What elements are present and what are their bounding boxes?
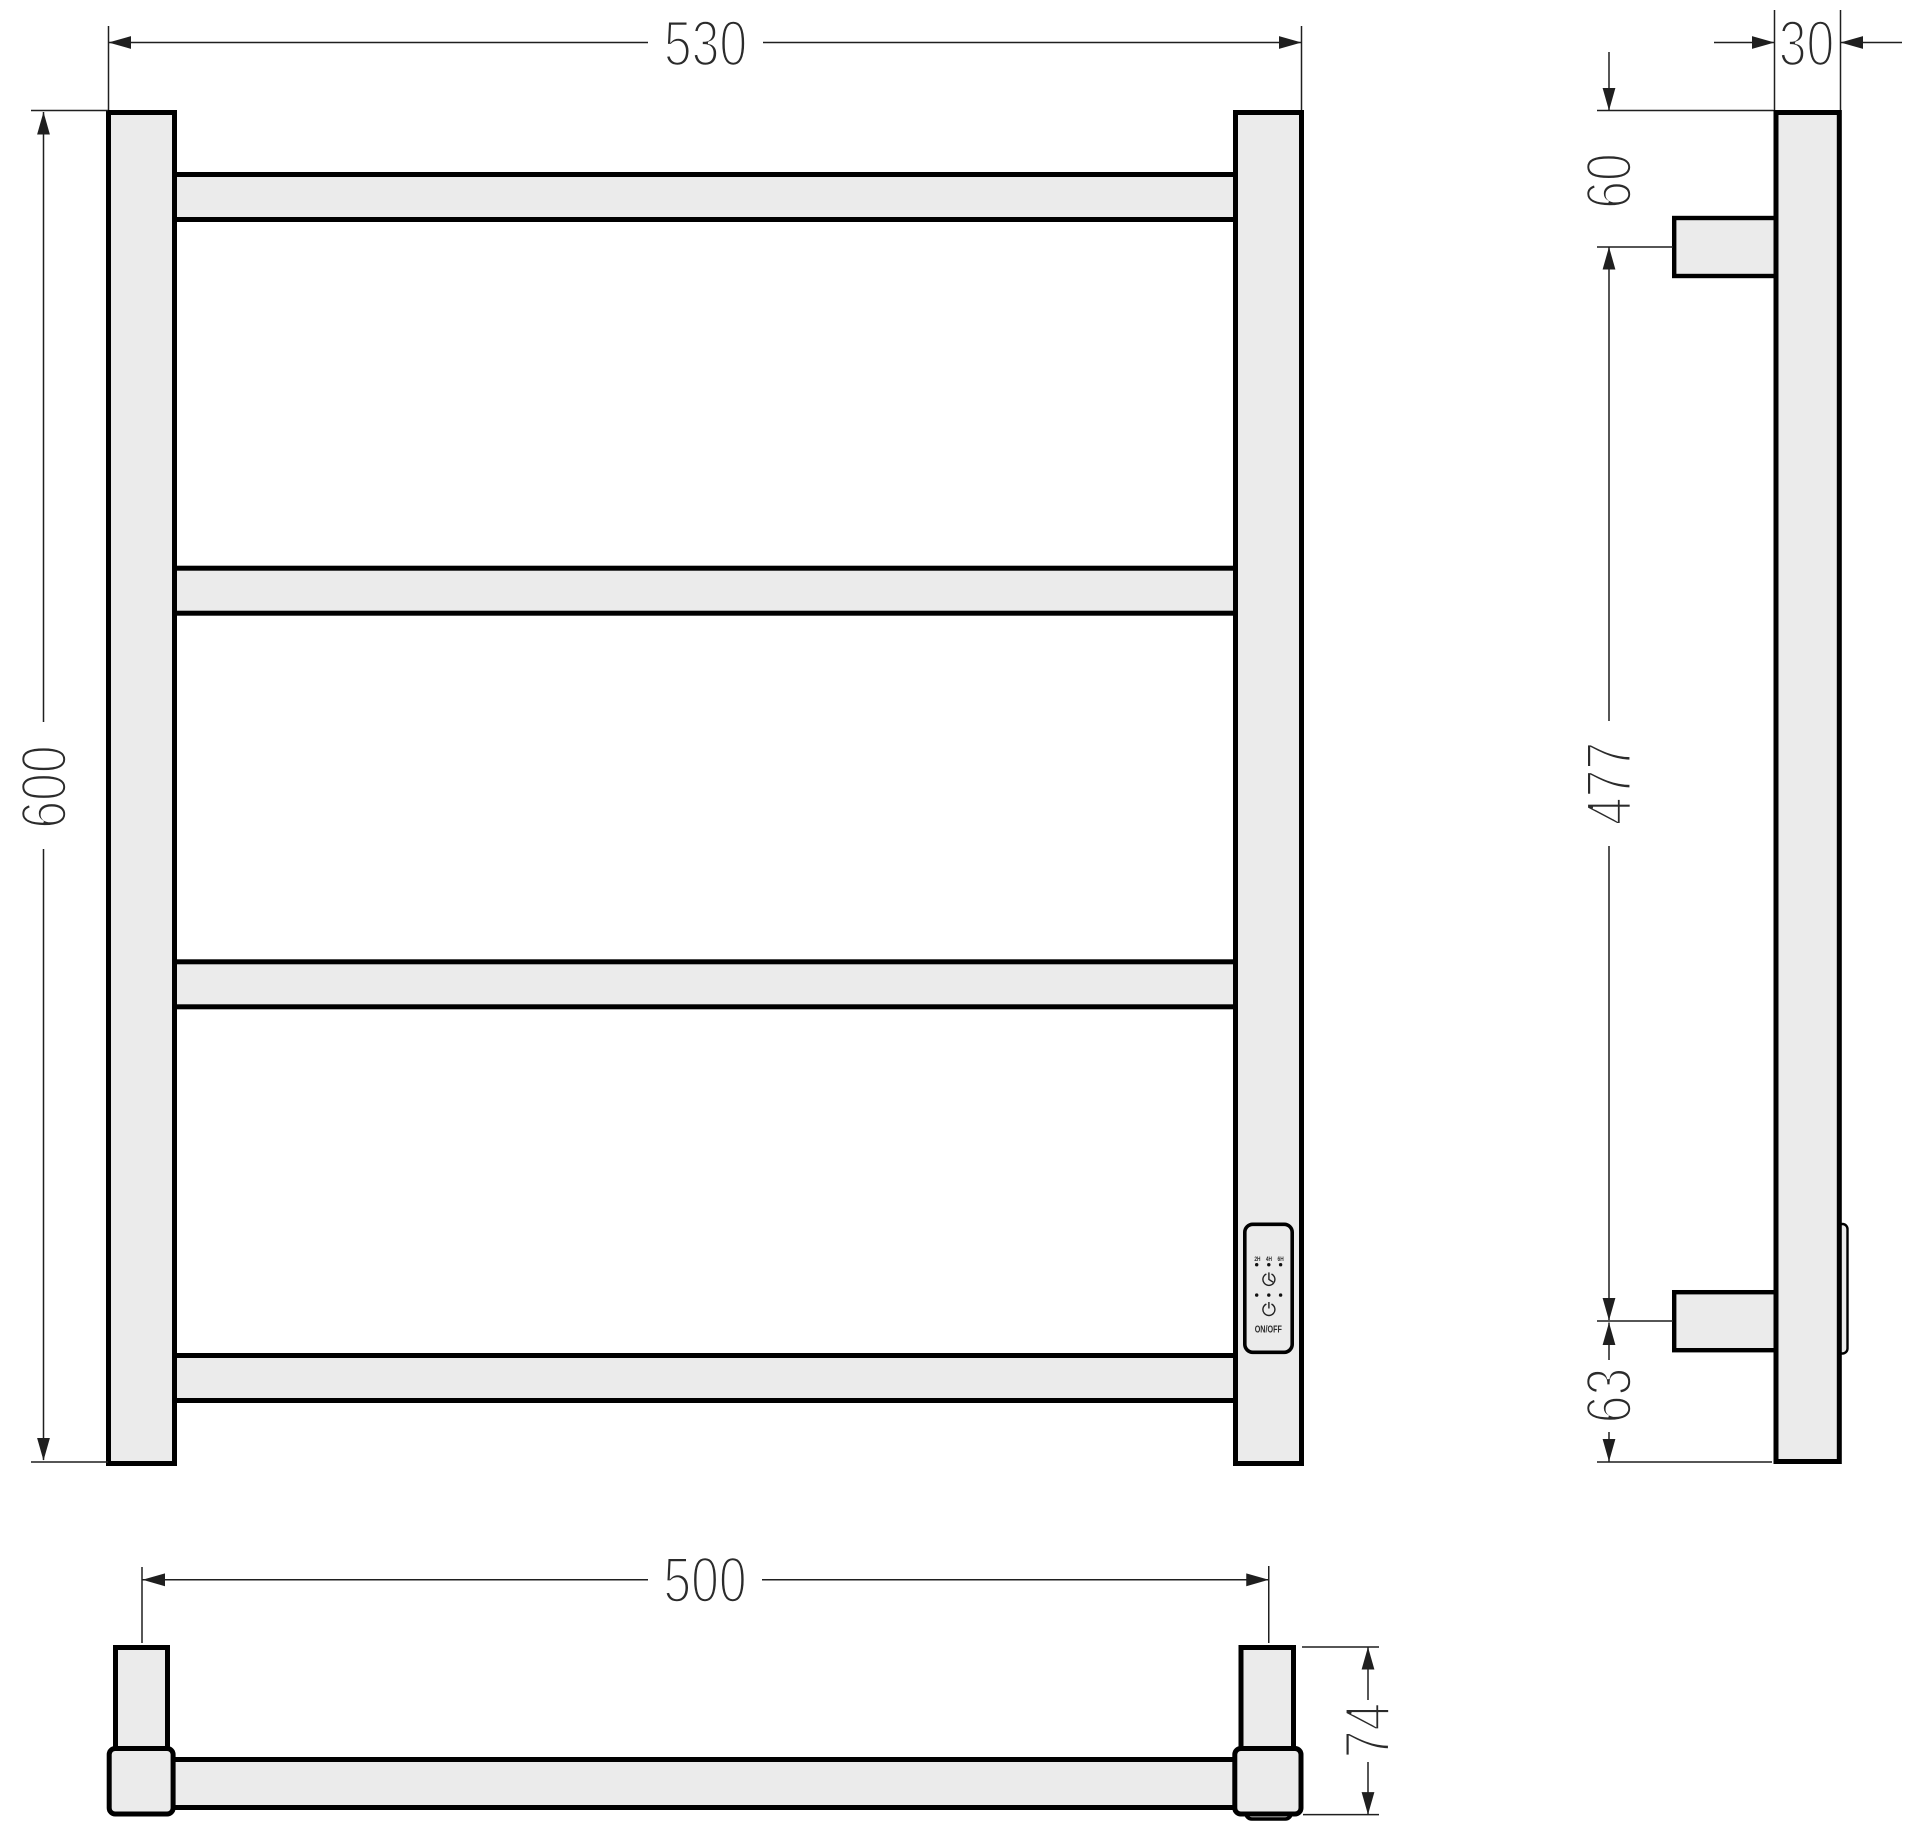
svg-text:ON/OFF: ON/OFF — [1255, 1323, 1282, 1334]
svg-text:4H: 4H — [1266, 1256, 1272, 1263]
svg-text:530: 530 — [664, 9, 747, 80]
svg-text:63: 63 — [1574, 1368, 1645, 1424]
svg-text:74: 74 — [1333, 1703, 1404, 1759]
svg-text:600: 600 — [9, 745, 80, 828]
svg-text:2H: 2H — [1254, 1256, 1260, 1263]
svg-text:477: 477 — [1574, 742, 1645, 825]
svg-text:30: 30 — [1779, 9, 1835, 80]
svg-text:6H: 6H — [1278, 1256, 1284, 1263]
svg-text:500: 500 — [663, 1545, 746, 1616]
svg-text:60: 60 — [1574, 153, 1645, 209]
